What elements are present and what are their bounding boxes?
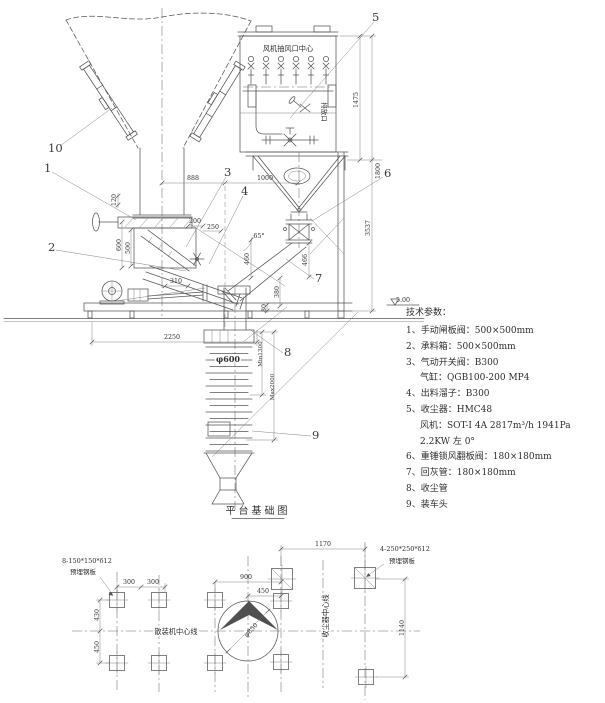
elevation-mark: 5.00 — [387, 297, 419, 305]
dim-3537: 3537 — [365, 220, 372, 236]
tech-params-title: 技术参数： — [406, 308, 604, 319]
dim-466: 466 — [302, 254, 309, 266]
tech-param-line: 5、收尘器：HMC48 — [406, 405, 604, 416]
callout-9: 9 — [312, 428, 319, 442]
tech-param-line: 9、装车头 — [406, 500, 604, 511]
callout-4: 4 — [241, 184, 248, 198]
dim-300a: 300 — [123, 579, 135, 586]
tech-param-line: 6、重锤锁风翻板阀：180×180mm — [406, 452, 604, 463]
tech-param-line: 2、承料箱：500×500mm — [406, 342, 604, 353]
dim-2250: 2250 — [164, 334, 180, 341]
dim-600: 600 — [116, 239, 123, 251]
dim-1140: 1140 — [399, 620, 406, 636]
dim-dia850: φ850 — [243, 622, 259, 639]
callout-6: 6 — [384, 166, 391, 180]
tech-param-line: 2.2KW 左 0° — [406, 437, 604, 448]
discharge-chute — [143, 266, 250, 310]
receiving-box — [134, 228, 196, 271]
callout-10: 10 — [48, 141, 63, 155]
tech-param-line: 气缸：QGB100-200 MP4 — [406, 373, 604, 384]
right-plate-name: 预埋钢板 — [389, 556, 416, 565]
tech-param-line: 4、出料溜子：B300 — [406, 389, 604, 400]
tech-params: 技术参数： 1、手动闸板阀：500×500mm 2、承料箱：500×500mm … — [406, 308, 604, 516]
technical-drawing-page: 888 1000 120 600 500 310 200 250 65° 460 — [0, 0, 605, 703]
left-plate-spec: 8-150*150*δ12 — [62, 557, 112, 565]
dust-collector-centerline-label: 收尘器中心线 — [321, 594, 330, 637]
support-brace-left — [78, 61, 137, 142]
support-column — [310, 152, 344, 311]
dim-max2000: Max2000 — [270, 373, 276, 400]
dim-80: 80 — [261, 304, 268, 312]
callout-7: 7 — [315, 271, 322, 285]
callout-2: 2 — [48, 240, 55, 254]
plan-title: 平台基础图 — [226, 504, 291, 517]
callout-3: 3 — [224, 165, 231, 179]
elevation-view: 888 1000 120 600 500 310 200 250 65° 460 — [4, 8, 424, 510]
fan-unit — [100, 281, 207, 304]
tech-param-line: 7、回灰管：180×180mm — [406, 468, 604, 479]
bulk-machine-centerline-label: 散装机中心线 — [154, 627, 197, 636]
dim-120: 120 — [111, 194, 118, 206]
tech-param-line: 3、气动开关阀：B300 — [406, 358, 604, 369]
callout-5: 5 — [372, 10, 379, 24]
dim-500: 500 — [125, 242, 132, 254]
support-brace-right — [188, 60, 245, 142]
tech-param-line: 8、收尘管 — [406, 484, 604, 495]
dim-450v: 450 — [94, 641, 101, 653]
hopper-funnel — [66, 8, 251, 316]
dim-1170: 1170 — [315, 541, 331, 548]
dim-380: 380 — [274, 286, 281, 298]
dim-300b: 300 — [147, 579, 159, 586]
callout-1: 1 — [44, 161, 51, 175]
fan-suction-center-label: 风机抽风口中心 — [263, 44, 313, 53]
dim-888: 888 — [187, 175, 199, 182]
left-plate-name: 预埋钢板 — [70, 567, 97, 576]
dim-900: 900 — [240, 574, 252, 581]
dim-65deg: 65° — [253, 233, 264, 240]
platform — [4, 303, 424, 322]
dim-1800: 1800 — [375, 163, 382, 179]
plan-view: 平台基础图 φ850 300 300 43 — [62, 504, 430, 700]
dim-250: 250 — [207, 224, 219, 231]
tech-param-line: 风机：SOT-Ⅰ 4A 2817m³/h 1941Pa — [406, 421, 604, 432]
dim-310: 310 — [170, 278, 182, 285]
discharge-port-label: 排放口 — [320, 102, 329, 122]
dim-1475: 1475 — [353, 92, 360, 108]
dim-min1300: Min1300 — [258, 341, 264, 367]
right-plate-spec: 4-250*250*δ12 — [380, 545, 430, 553]
dim-450h: 450 — [257, 588, 269, 595]
chevron-marker — [220, 601, 278, 630]
tech-param-line: 1、手动闸板阀：500×500mm — [406, 326, 604, 337]
dim-dia600: φ600 — [216, 354, 240, 364]
callout-8: 8 — [284, 345, 291, 359]
dim-1000: 1000 — [257, 175, 273, 182]
dim-460: 460 — [244, 253, 251, 265]
dim-430: 430 — [94, 609, 101, 621]
